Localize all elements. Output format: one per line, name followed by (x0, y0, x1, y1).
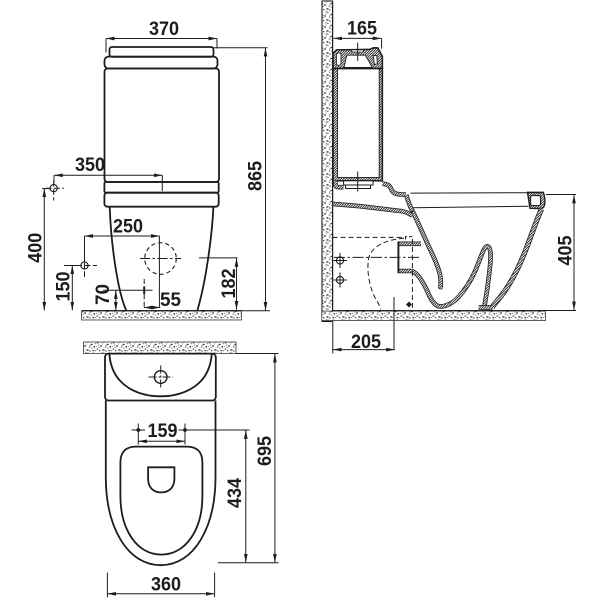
svg-text:350: 350 (75, 155, 105, 176)
svg-text:55: 55 (160, 290, 181, 311)
svg-text:405: 405 (556, 235, 577, 265)
svg-text:400: 400 (25, 233, 46, 263)
svg-text:165: 165 (347, 19, 377, 40)
svg-text:370: 370 (149, 19, 179, 40)
svg-text:159: 159 (148, 421, 178, 442)
svg-text:865: 865 (246, 161, 267, 191)
svg-text:150: 150 (53, 272, 74, 302)
svg-text:434: 434 (225, 478, 246, 508)
svg-text:70: 70 (93, 284, 114, 305)
svg-text:250: 250 (113, 217, 143, 238)
svg-text:360: 360 (151, 574, 181, 595)
svg-text:695: 695 (255, 436, 276, 466)
svg-text:205: 205 (351, 332, 381, 353)
svg-text:182: 182 (219, 269, 240, 299)
